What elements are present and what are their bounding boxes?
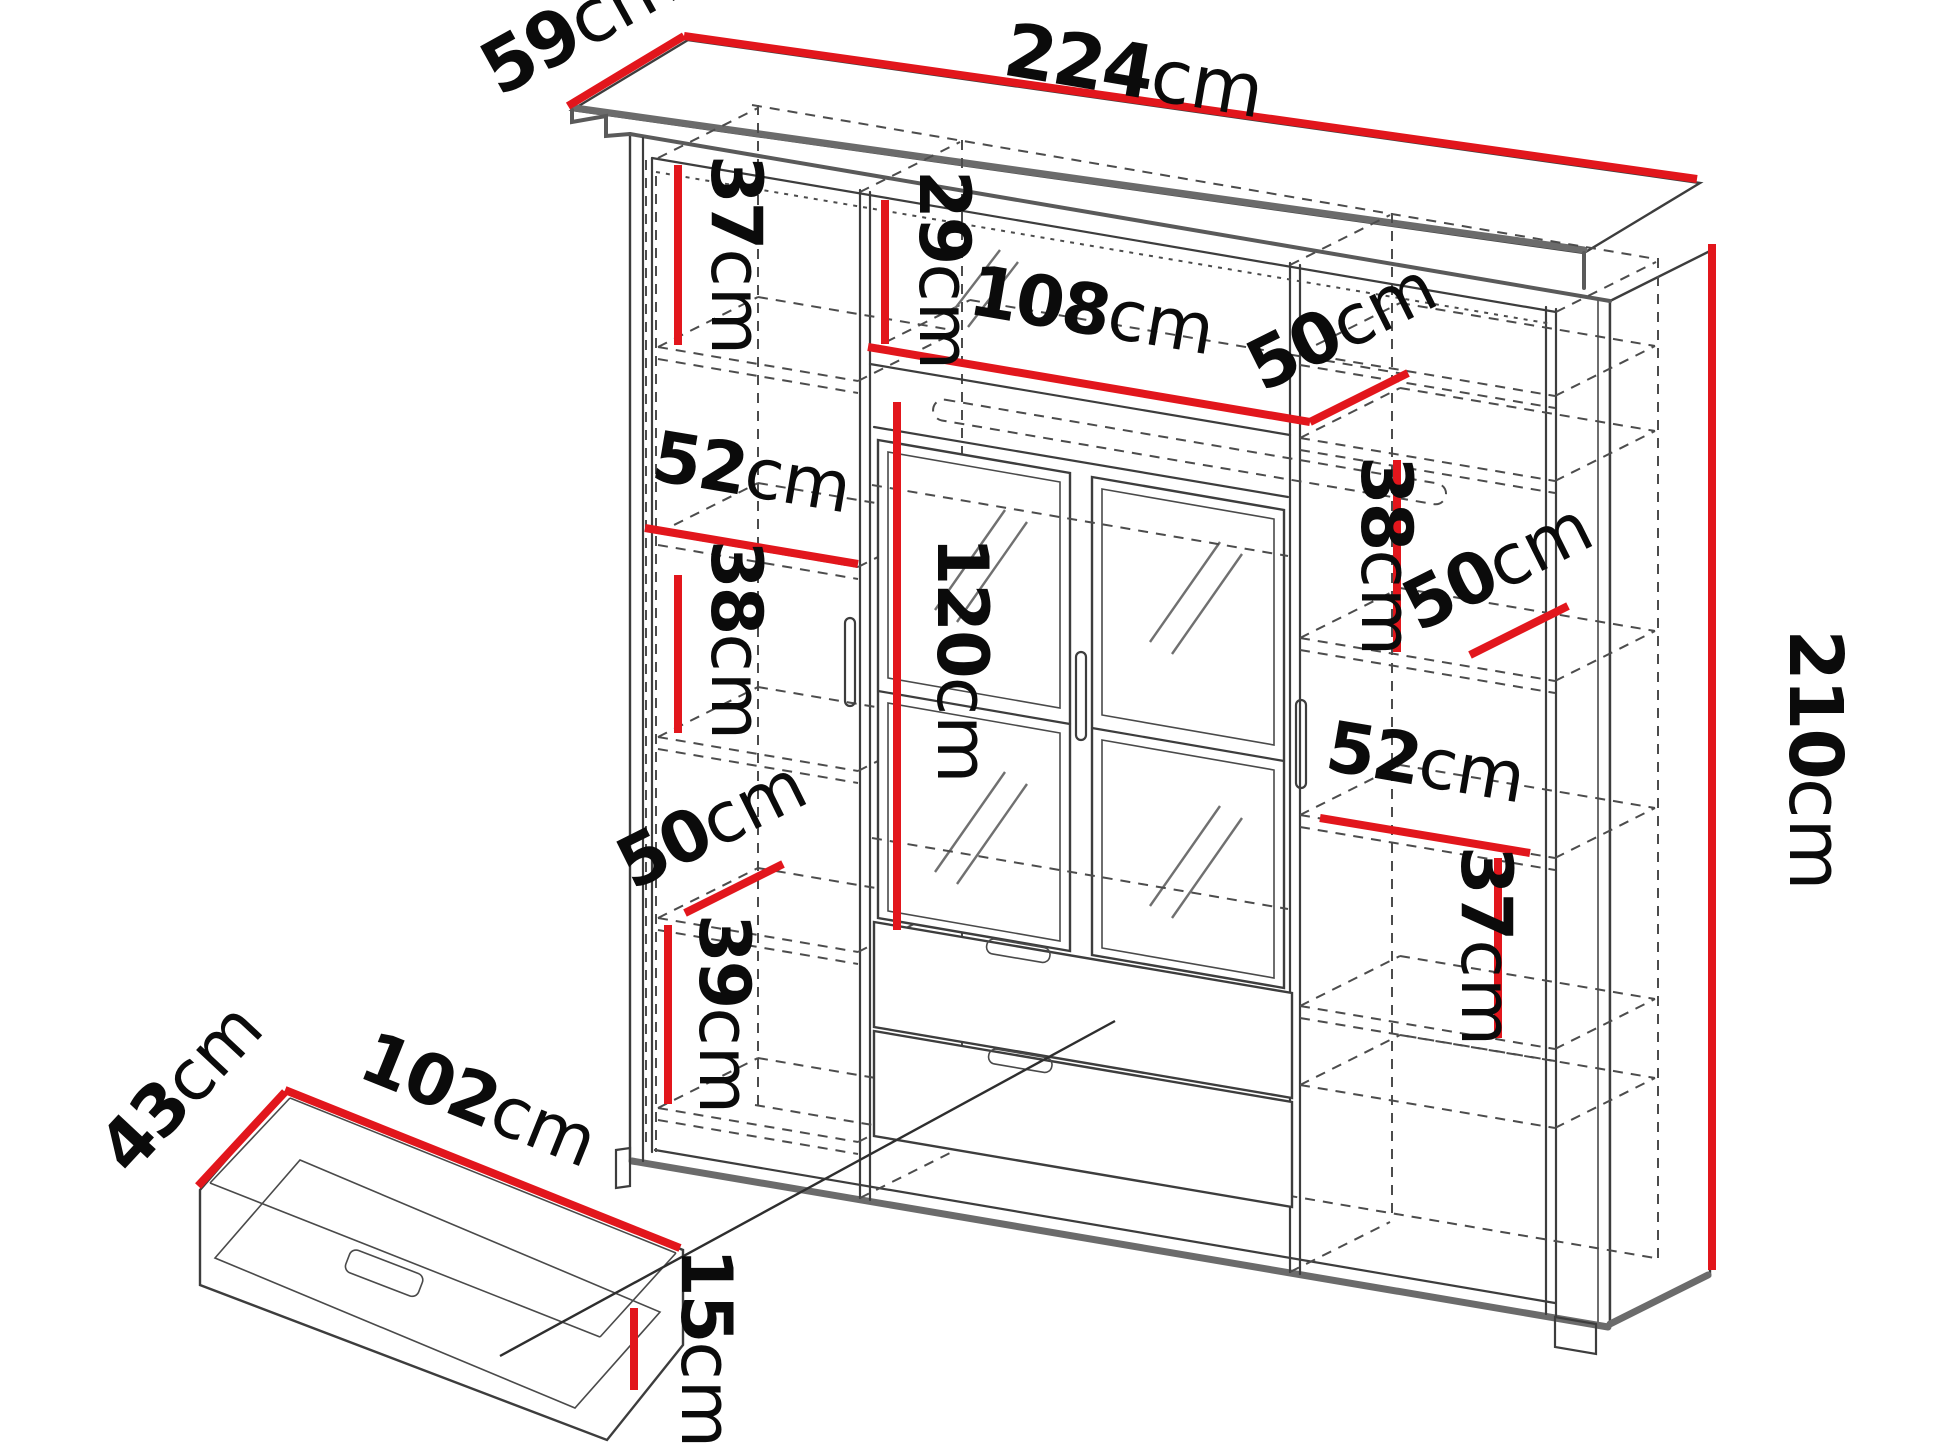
wardrobe-dimension-diagram: 224cm 59cm 210cm 37cm 52cm 38cm 50cm 39c… bbox=[0, 0, 1940, 1455]
dim-label-left-top-gap: 37cm bbox=[695, 155, 777, 355]
dim-label-wardrobe-height: 210cm bbox=[1772, 629, 1858, 890]
drawer-box bbox=[200, 1092, 683, 1440]
wardrobe-side-panel bbox=[1610, 251, 1710, 1326]
dim-label-center-door-height: 120cm bbox=[921, 537, 1003, 784]
dim-label-center-top-gap: 29cm bbox=[903, 170, 985, 370]
dim-label-left-middle-gap: 38cm bbox=[695, 540, 777, 740]
dim-label-left-bottom-gap: 39cm bbox=[683, 914, 765, 1114]
dim-label-right-lower-gap: 37cm bbox=[1445, 846, 1527, 1046]
dim-label-drawer-height: 15cm bbox=[665, 1248, 747, 1448]
mirror-door-right bbox=[1092, 477, 1284, 988]
diagram-canvas: 224cm 59cm 210cm 37cm 52cm 38cm 50cm 39c… bbox=[0, 0, 1940, 1455]
wardrobe-foot-left bbox=[616, 1148, 630, 1188]
